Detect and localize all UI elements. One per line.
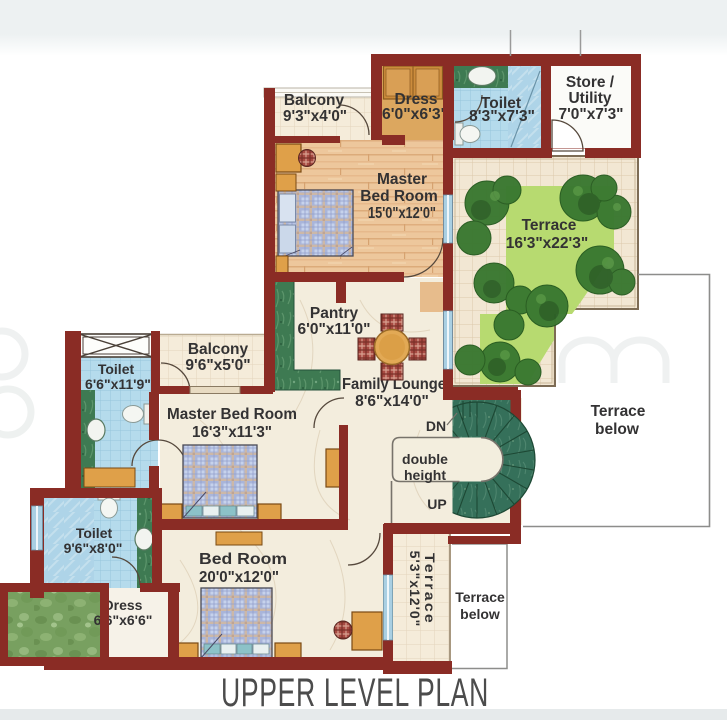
svg-text:7'0"x7'3": 7'0"x7'3" [559, 106, 624, 123]
svg-text:16'3"x11'3": 16'3"x11'3" [192, 424, 272, 441]
svg-text:9'3"x4'0": 9'3"x4'0" [283, 108, 347, 125]
svg-text:6'0"x6'3": 6'0"x6'3" [382, 106, 448, 123]
svg-text:Toilet: Toilet [76, 525, 113, 541]
svg-text:Master Bed Room: Master Bed Room [167, 406, 297, 423]
svg-text:Balcony: Balcony [284, 92, 345, 109]
svg-text:double: double [402, 451, 448, 467]
svg-text:16'3"x22'3": 16'3"x22'3" [506, 235, 588, 252]
svg-text:Utility: Utility [568, 90, 611, 107]
svg-text:height: height [404, 467, 446, 483]
svg-text:6'0"x11'0": 6'0"x11'0" [298, 321, 371, 338]
svg-text:Dress: Dress [104, 597, 143, 613]
svg-text:20'0"x12'0": 20'0"x12'0" [199, 569, 279, 586]
svg-text:Balcony: Balcony [188, 341, 249, 358]
svg-text:UPPER LEVEL PLAN: UPPER LEVEL PLAN [221, 671, 489, 715]
svg-text:Bed Room: Bed Room [199, 551, 287, 568]
svg-text:Master: Master [377, 171, 427, 188]
svg-text:6'6"x11'9": 6'6"x11'9" [85, 376, 151, 392]
svg-text:UP: UP [427, 496, 446, 512]
svg-text:8'6"x14'0": 8'6"x14'0" [355, 393, 429, 410]
svg-text:9'6"x8'0": 9'6"x8'0" [64, 540, 123, 556]
svg-text:Terrace: Terrace [591, 403, 646, 420]
svg-text:DN: DN [426, 418, 446, 434]
svg-text:Terrace: Terrace [455, 589, 505, 605]
svg-text:Store /: Store / [566, 74, 615, 91]
svg-text:Terrace: Terrace [422, 553, 438, 625]
svg-text:Terrace: Terrace [522, 217, 577, 234]
svg-text:below: below [595, 421, 640, 438]
svg-text:Toilet: Toilet [98, 361, 135, 377]
svg-text:Bed Room: Bed Room [360, 188, 438, 205]
svg-text:8'3"x7'3": 8'3"x7'3" [469, 108, 535, 125]
svg-text:9'6"x5'0": 9'6"x5'0" [185, 357, 250, 374]
svg-text:Pantry: Pantry [310, 305, 359, 322]
svg-text:below: below [460, 606, 500, 622]
svg-text:5'3"x12'0": 5'3"x12'0" [407, 551, 423, 628]
svg-text:15'0"x12'0": 15'0"x12'0" [368, 205, 436, 222]
